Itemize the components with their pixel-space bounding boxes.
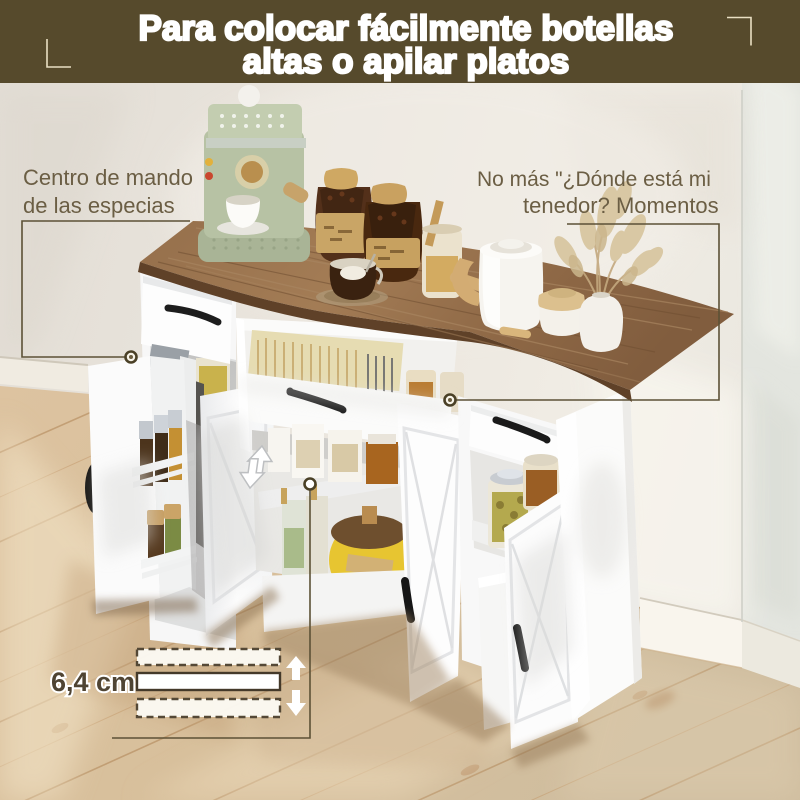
svg-text:tenedor? Momentos: tenedor? Momentos bbox=[523, 193, 719, 218]
svg-text:6,4 cm: 6,4 cm bbox=[51, 667, 135, 697]
svg-text:altas o apilar platos: altas o apilar platos bbox=[243, 42, 570, 81]
svg-text:de las especias: de las especias bbox=[23, 193, 175, 218]
svg-text:No más "¿Dónde está mi: No más "¿Dónde está mi bbox=[477, 168, 711, 191]
svg-text:Centro de mando: Centro de mando bbox=[23, 165, 193, 190]
